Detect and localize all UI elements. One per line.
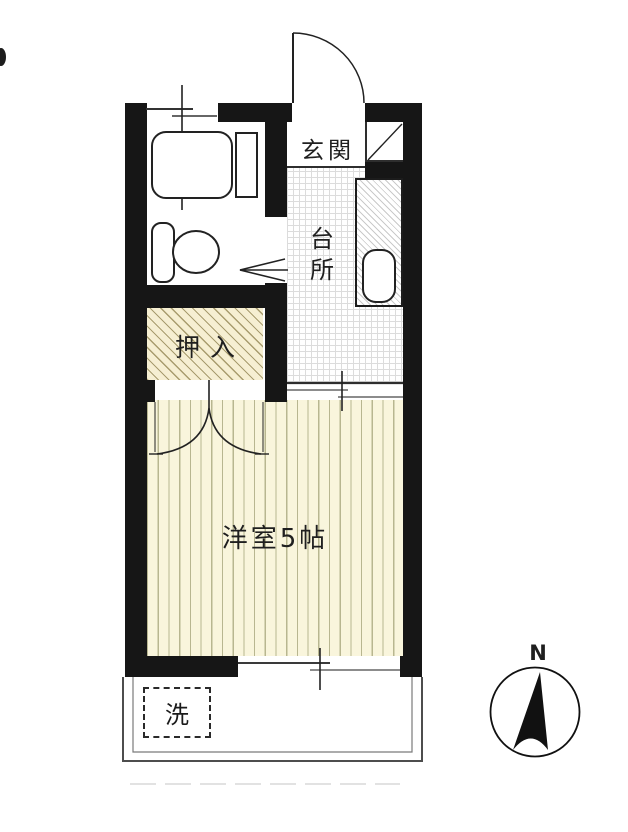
wall-right [403,103,422,677]
north-arrow-icon [513,672,548,750]
wall-left [125,103,147,677]
floor-plan: 洗 [0,0,628,832]
wall-bottom-left [125,656,238,677]
shoe-cabinet [365,122,403,162]
kitchen-room-partition [287,382,403,400]
wall-closet-stub [147,380,155,402]
compass-north-label: N [520,641,556,665]
wall-counter-stub [365,162,403,178]
toilet [152,223,219,282]
wall-mid-upper [265,122,287,217]
wall-bath-closet [125,285,287,308]
compass-circle [491,668,580,757]
main-room-label: 洋室5帖 [147,518,403,555]
kitchen-label: 台 所 [303,224,341,286]
bathroom-window [146,85,217,210]
compass [491,668,580,757]
washer-label: 洗 [165,695,189,730]
washing-machine: 洗 [143,687,211,738]
wall-bottom-right [400,656,422,677]
wall-top-middle [218,103,292,122]
closet-label: 押入 [147,328,263,364]
entrance-label: 玄関 [287,131,365,165]
scan-artifact-dot [0,48,6,66]
kitchen-counter [355,178,403,307]
vanity-shelf [236,133,257,197]
entrance-door [293,33,364,103]
bathroom-door-arrow [240,259,288,281]
bathtub [152,132,257,198]
